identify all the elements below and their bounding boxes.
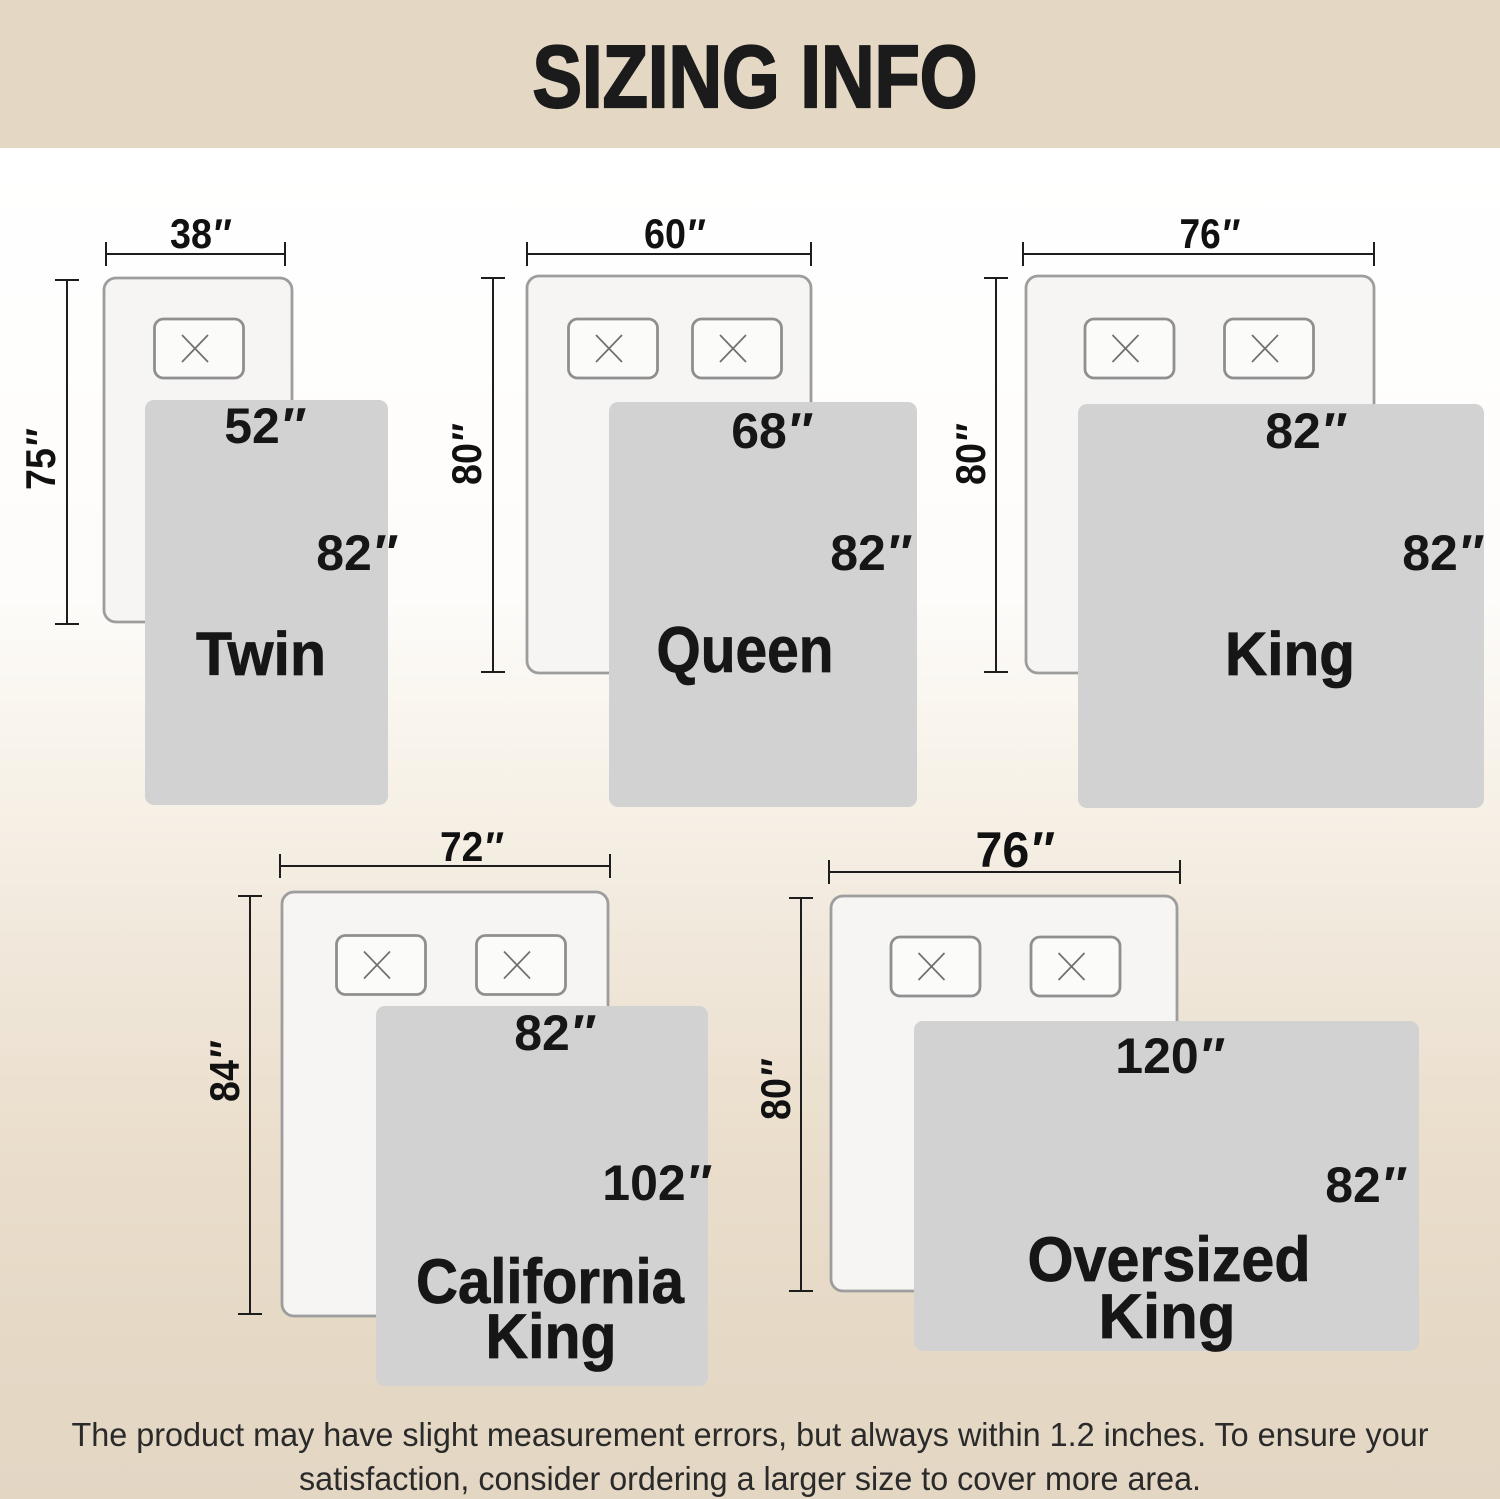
svg-text:The product may have slight me: The product may have slight measurement … <box>72 1416 1429 1453</box>
svg-text:King: King <box>1225 620 1355 688</box>
svg-text:82″: 82″ <box>1402 525 1484 581</box>
svg-text:52″: 52″ <box>224 398 306 454</box>
svg-text:76″: 76″ <box>1180 210 1241 257</box>
svg-text:72″: 72″ <box>440 823 504 870</box>
svg-text:82″: 82″ <box>514 1005 596 1061</box>
svg-text:80″: 80″ <box>752 1058 799 1120</box>
svg-text:84″: 84″ <box>201 1040 248 1102</box>
svg-text:75″: 75″ <box>17 428 64 490</box>
svg-text:80″: 80″ <box>443 423 490 485</box>
svg-text:102″: 102″ <box>602 1155 711 1211</box>
svg-text:82″: 82″ <box>830 525 912 581</box>
svg-text:Queen: Queen <box>657 613 834 686</box>
svg-text:82″: 82″ <box>1265 403 1347 459</box>
svg-text:satisfaction, consider orderin: satisfaction, consider ordering a larger… <box>299 1460 1201 1497</box>
svg-text:120″: 120″ <box>1115 1028 1224 1084</box>
svg-text:38″: 38″ <box>170 210 232 257</box>
svg-text:King: King <box>486 1302 617 1372</box>
svg-text:80″: 80″ <box>947 423 994 485</box>
svg-text:King: King <box>1099 1282 1236 1352</box>
svg-text:Twin: Twin <box>196 620 326 688</box>
svg-text:82″: 82″ <box>1325 1157 1407 1213</box>
svg-text:60″: 60″ <box>644 210 706 257</box>
svg-text:68″: 68″ <box>731 403 813 459</box>
svg-text:82″: 82″ <box>316 525 398 581</box>
svg-text:SIZING INFO: SIZING INFO <box>533 27 978 126</box>
svg-text:76″: 76″ <box>976 822 1055 878</box>
